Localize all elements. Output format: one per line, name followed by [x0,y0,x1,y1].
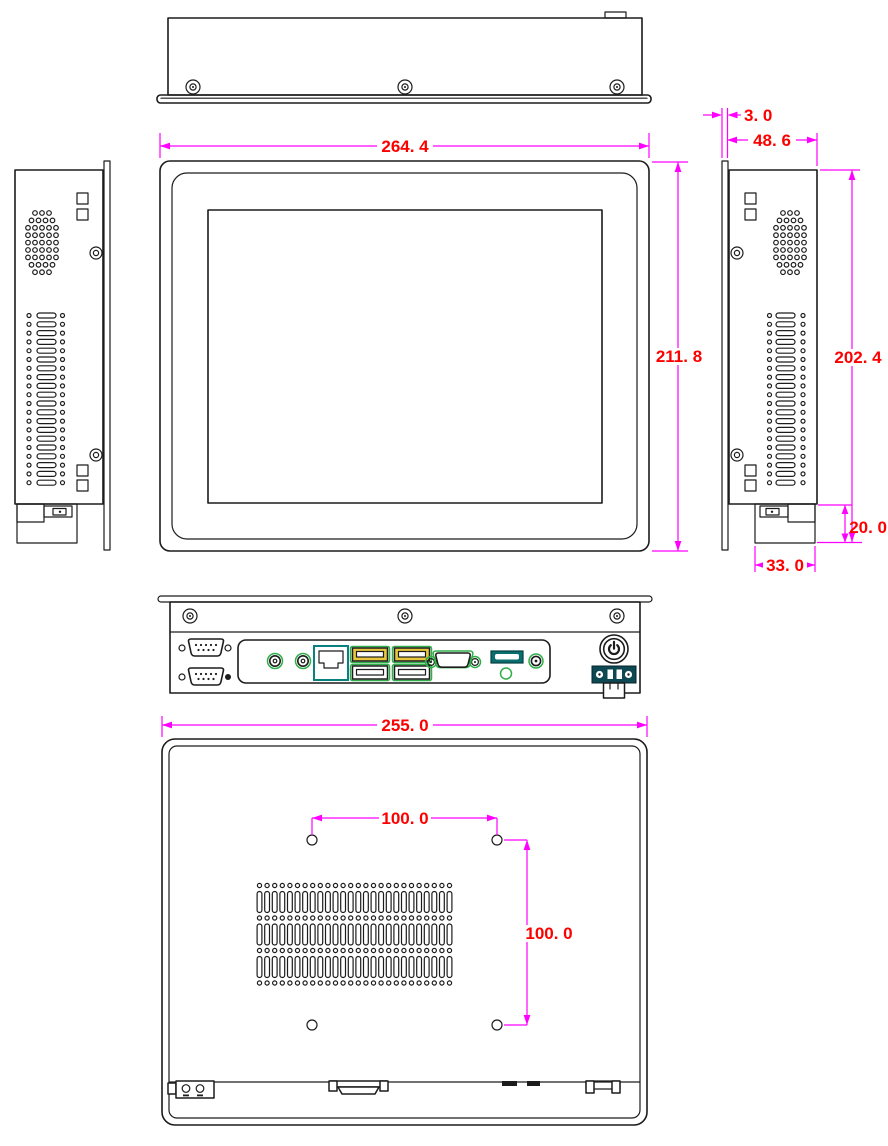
front-view [160,161,649,551]
audio-jack-icon [296,654,311,669]
led-indicator-icon [501,668,512,679]
speaker-holes [774,211,807,275]
screw-icon [731,247,743,259]
vesa-hole [307,835,317,845]
vent-slots [27,313,65,485]
screw-icon [610,609,624,623]
screw-icon [398,80,412,94]
dim-vesa-vertical: 100. 0 [504,840,575,1025]
rear-vga-connector-icon [329,1081,388,1094]
dim-front-height: 211. 8 [652,162,703,551]
dim-side-height: 202. 4 [820,170,884,542]
screw-icon [90,449,102,461]
rear-tab [527,1081,540,1086]
right-side-view [722,161,817,550]
left-bottom-connector-housing [17,504,77,543]
dim-label: 3. 0 [744,106,772,125]
vesa-hole [492,1020,502,1030]
bottom-io-view [158,596,652,698]
dim-front-width: 264. 4 [160,133,649,158]
rear-power-inlet-icon [168,1081,214,1098]
rear-connector-icon [586,1081,620,1093]
dim-label: 264. 4 [381,137,429,156]
display-screen [208,210,602,503]
screw-icon [183,609,197,623]
dim-label: 100. 0 [381,809,428,828]
dimension-drawing-canvas: 264. 4 211. 8 3. 0 48. 6 202. 4 [0,0,888,1146]
top-view [157,12,651,103]
serial-db9-port-icon [189,639,224,656]
panel-pc-drawing: 264. 4 211. 8 3. 0 48. 6 202. 4 [0,0,888,1146]
power-button-icon [600,635,628,663]
left-bezel-edge [104,161,110,550]
screw-icon [90,247,102,259]
front-bezel [172,173,637,539]
ethernet-rj45-port-icon [314,646,348,680]
left-side-view [15,161,110,550]
screw-icon [186,80,200,94]
dim-vesa-horizontal: 100. 0 [312,809,497,835]
dim-rear-width: 255. 0 [162,716,647,737]
dim-label: 255. 0 [381,716,428,735]
dim-body-depth: 48. 6 [727,131,817,166]
audio-jack-icon [268,654,283,669]
vga-port-icon [426,651,481,668]
antenna-connector-icon [529,654,543,668]
vesa-hole [492,835,502,845]
rear-vent-grid [257,883,452,985]
front-outer-frame [160,161,649,551]
dim-label: 20. 0 [849,518,887,537]
top-tab [605,12,626,18]
screw-icon [731,449,743,461]
dim-label: 211. 8 [656,347,702,366]
vesa-hole [307,1020,317,1030]
usb-port-pair-icon [351,647,390,681]
screw-icon [398,609,412,623]
right-bezel-edge [722,161,728,550]
dim-label: 33. 0 [766,556,804,575]
dim-label: 202. 4 [834,348,882,367]
dim-label: 100. 0 [525,924,572,943]
rear-tab [502,1081,517,1086]
right-bottom-connector-housing [755,504,815,543]
speaker-holes [26,211,59,275]
dim-connector-width: 33. 0 [755,546,815,575]
serial-db9-port-icon [189,668,224,685]
vent-slots [768,313,806,485]
hdmi-port-icon [491,651,523,663]
dim-label: 48. 6 [753,131,791,150]
screw-icon [610,80,624,94]
